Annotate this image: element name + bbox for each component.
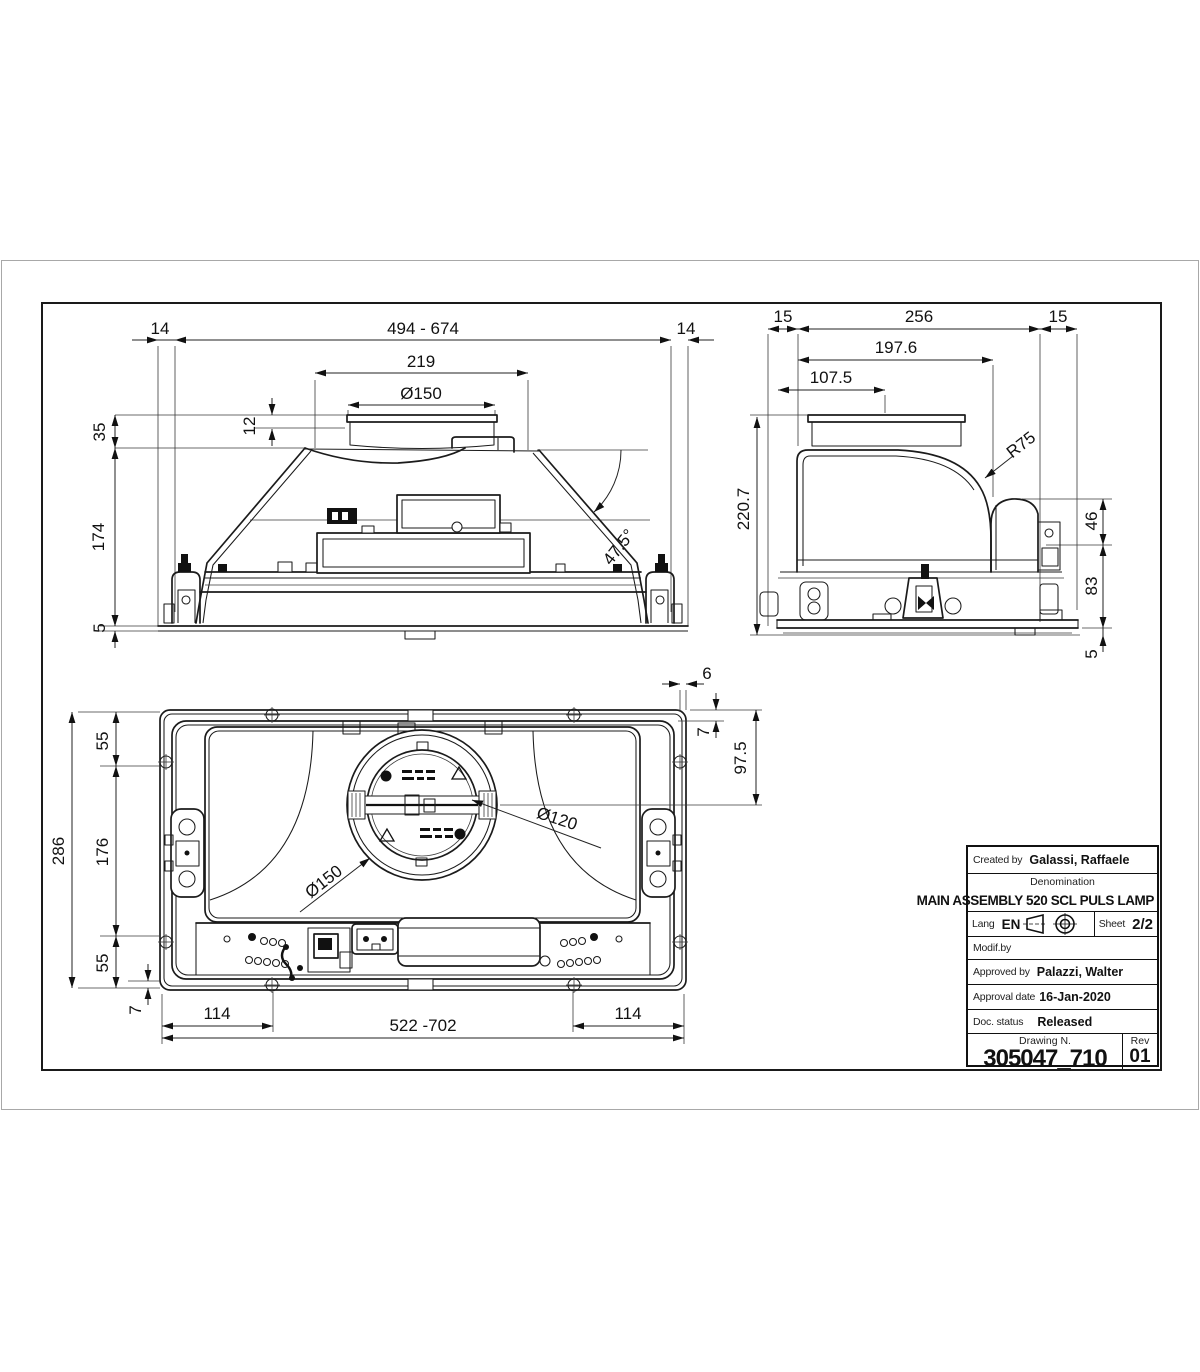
- dim-label: 5: [1082, 649, 1101, 658]
- dim-label: 15: [774, 307, 793, 326]
- dim-label: 5: [90, 623, 109, 632]
- approved-by-label: Approved by: [973, 966, 1030, 978]
- doc-status-value: Released: [1037, 1015, 1092, 1029]
- dim-label: 286: [49, 837, 68, 865]
- approved-by-value: Palazzi, Walter: [1037, 965, 1123, 979]
- dim-label: 256: [905, 307, 933, 326]
- dim-label: 47.5°: [599, 526, 639, 569]
- dim-label: 107.5: [810, 368, 853, 387]
- side-view: 15 256 15 197.6 107.5 220.7 46 83 5 R75: [734, 307, 1112, 659]
- rev-cell: Rev 01: [1123, 1034, 1157, 1069]
- created-by-value: Galassi, Raffaele: [1029, 853, 1129, 867]
- dim-label: 522 -702: [389, 1016, 456, 1035]
- drawing-sheet: 14 494 - 674 14 219 Ø150 12 35 174 5 47.…: [0, 0, 1200, 1372]
- dim-label: 97.5: [731, 741, 750, 774]
- title-block-approved-row: Approved by Palazzi, Walter: [968, 960, 1157, 985]
- lang-label: Lang: [972, 918, 995, 930]
- dim-label: 55: [93, 954, 112, 973]
- first-angle-projection-icon: [1023, 912, 1079, 936]
- denomination-label: Denomination: [968, 874, 1157, 888]
- lang-value: EN: [1002, 917, 1021, 932]
- dim-label: 7: [694, 727, 713, 736]
- title-block: Created by Galassi, Raffaele Denominatio…: [966, 845, 1159, 1067]
- dim-label: 15: [1049, 307, 1068, 326]
- dim-label: 6: [702, 664, 711, 683]
- dim-label: 55: [93, 732, 112, 751]
- dim-label: R75: [1003, 428, 1039, 462]
- technical-drawing-canvas: 14 494 - 674 14 219 Ø150 12 35 174 5 47.…: [0, 0, 1200, 1372]
- drawing-number-value: 305047_710: [983, 1045, 1106, 1072]
- title-block-lang-sheet-row: Lang EN Sheet 2/2: [968, 912, 1157, 937]
- title-block-approval-date-row: Approval date 16-Jan-2020: [968, 985, 1157, 1010]
- title-block-drawing-number-row: Drawing N. 305047_710 Rev 01: [968, 1034, 1157, 1069]
- title-block-created-row: Created by Galassi, Raffaele: [968, 847, 1157, 874]
- modif-by-label: Modif.by: [973, 942, 1011, 954]
- dim-label: 7: [126, 1005, 145, 1014]
- drawing-number-cell: Drawing N. 305047_710: [968, 1034, 1123, 1069]
- title-block-doc-status-row: Doc. status Released: [968, 1010, 1157, 1034]
- dim-label: 219: [407, 352, 435, 371]
- title-block-denomination-row: Denomination MAIN ASSEMBLY 520 SCL PULS …: [968, 874, 1157, 912]
- approval-date-value: 16-Jan-2020: [1039, 990, 1111, 1004]
- dim-label: 12: [240, 417, 259, 436]
- dim-label: 114: [203, 1004, 230, 1023]
- dim-label: 46: [1082, 512, 1101, 531]
- created-by-label: Created by: [973, 854, 1022, 866]
- dim-label: 494 - 674: [387, 319, 459, 338]
- dim-label: 176: [93, 838, 112, 866]
- sheet-label: Sheet: [1099, 918, 1125, 930]
- dim-label: 197.6: [875, 338, 918, 357]
- front-view: 14 494 - 674 14 219 Ø150 12 35 174 5 47.…: [89, 319, 714, 648]
- lang-cell: Lang EN: [968, 912, 1095, 936]
- rev-value: 01: [1129, 1046, 1150, 1067]
- dim-label: 220.7: [734, 488, 753, 531]
- dim-label: 14: [151, 319, 170, 338]
- dim-label: Ø150: [400, 384, 442, 403]
- approval-date-label: Approval date: [973, 991, 1035, 1003]
- dim-label: 14: [677, 319, 696, 338]
- dim-label: 174: [89, 523, 108, 551]
- bottom-view: 286 55 176 55 7 114 522 -702 114 6 7 97.…: [49, 664, 762, 1044]
- doc-status-label: Doc. status: [973, 1016, 1023, 1028]
- dim-label: 35: [90, 423, 109, 442]
- dim-label: 114: [614, 1004, 641, 1023]
- dim-label: 83: [1082, 577, 1101, 596]
- sheet-value: 2/2: [1132, 916, 1153, 933]
- title-block-modif-row: Modif.by: [968, 937, 1157, 960]
- denomination-value: MAIN ASSEMBLY 520 SCL PULS LAMP: [917, 893, 1154, 908]
- sheet-cell: Sheet 2/2: [1095, 912, 1157, 936]
